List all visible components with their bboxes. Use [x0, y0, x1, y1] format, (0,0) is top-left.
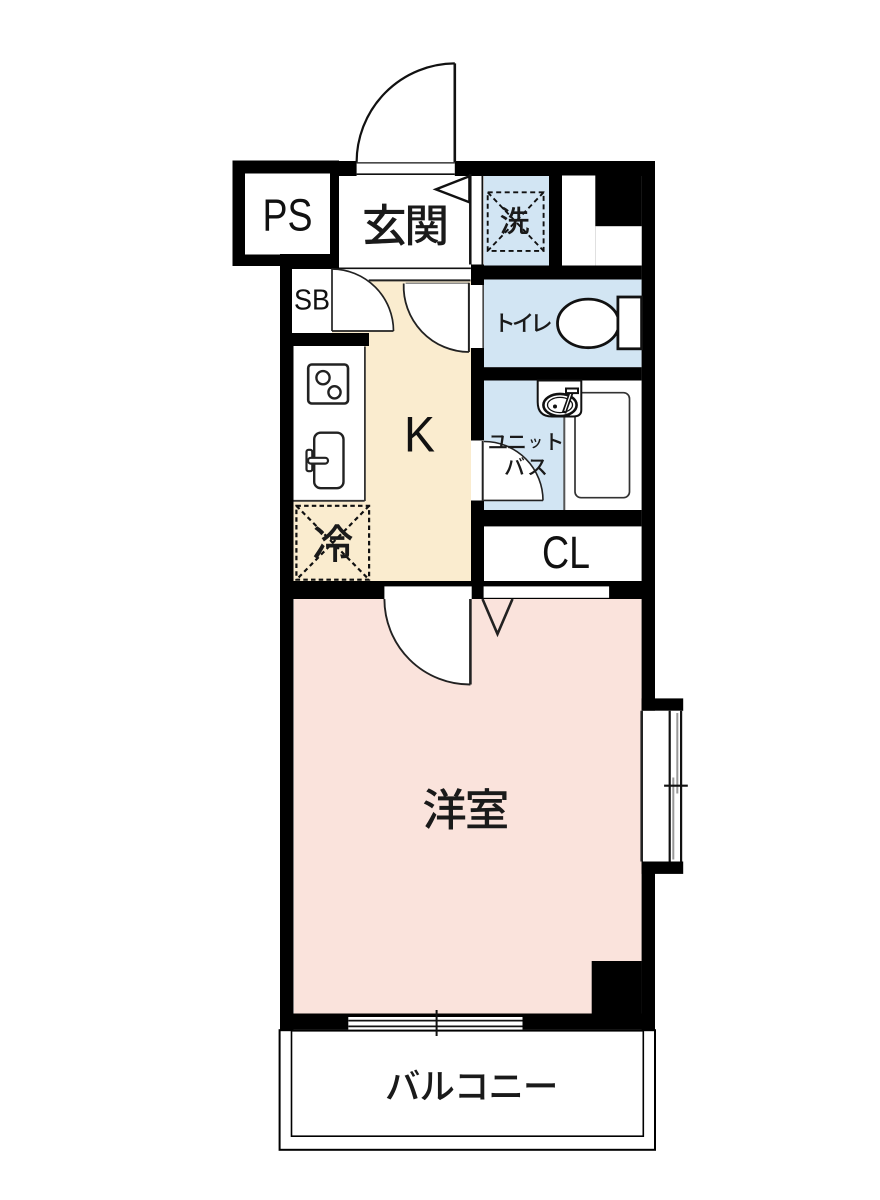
svg-text:PS: PS [263, 190, 313, 241]
svg-text:CL: CL [542, 527, 590, 578]
svg-text:SB: SB [294, 285, 330, 317]
svg-text:K: K [404, 407, 435, 463]
